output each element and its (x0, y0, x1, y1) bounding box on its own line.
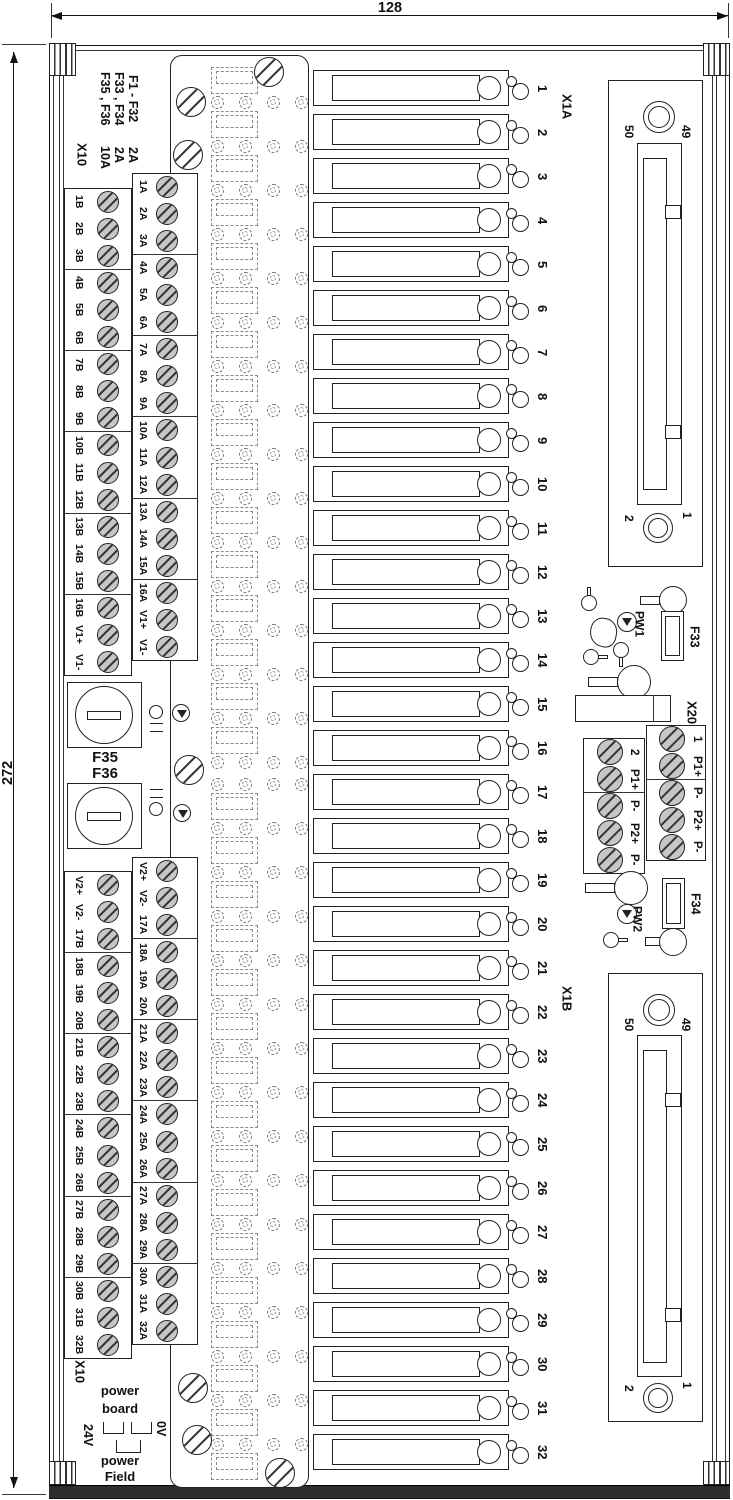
left-rail-line (59, 74, 60, 1461)
module-footprint-inner (216, 335, 253, 348)
terminal-label-5a: 5A (134, 282, 152, 308)
component-pad (149, 705, 163, 719)
test-point (295, 1262, 308, 1275)
mounting-screw (174, 755, 204, 785)
test-point (267, 492, 280, 505)
right-rail-line (716, 76, 717, 1461)
fuse-label-window (332, 471, 480, 497)
terminal-label-7a: 7A (134, 336, 152, 362)
test-point (239, 1350, 252, 1363)
fuse-label-window (332, 383, 480, 409)
screw-slot-line (176, 87, 201, 112)
fuse-number: 18 (534, 823, 551, 850)
x20-terminal-screw (597, 847, 623, 873)
module-footprint-inner (216, 291, 253, 304)
fuse-number: 16 (534, 735, 551, 762)
terminal-screw (97, 191, 119, 213)
test-point (239, 536, 252, 549)
test-point (295, 910, 308, 923)
screw-slot-line (97, 462, 115, 480)
x20-terminal-screw (659, 807, 685, 833)
dimension-arrow-left (51, 12, 62, 20)
fuse-label-window (332, 867, 480, 893)
board-bottom-edge (49, 1498, 730, 1499)
test-jack-top (506, 76, 517, 87)
screw-slot-line (156, 528, 174, 546)
terminal-screw (156, 1239, 178, 1261)
x20-terminal-label: 1 (689, 726, 705, 753)
fuse-f33-label: F33 (687, 615, 702, 659)
mounting-screw (182, 1425, 212, 1455)
x20-connector-body (575, 695, 671, 722)
test-point (295, 448, 308, 461)
test-point (211, 712, 224, 725)
test-point (295, 866, 308, 879)
led-indicator-icon (172, 704, 190, 722)
fuse-f34-inner (666, 883, 681, 924)
module-footprint-inner (216, 1149, 253, 1162)
terminal-label-16a: 16A (134, 580, 152, 606)
fuse-label-window (332, 603, 480, 629)
fuse-label-window (332, 251, 480, 277)
test-jack-top (506, 824, 517, 835)
module-footprint-inner (216, 379, 253, 392)
test-point (295, 580, 308, 593)
terminal-label-18a: 18A (134, 939, 152, 965)
fuse-indicator (477, 824, 501, 848)
fuse-label-window (332, 1395, 480, 1421)
terminal-screw (97, 462, 119, 484)
terminal-label-3a: 3A (134, 228, 152, 254)
terminal-label-21a: 21A (134, 1020, 152, 1046)
capacitor-lead (598, 655, 608, 659)
terminal-label-v2plus: V2+ (70, 872, 88, 898)
test-point (267, 910, 280, 923)
test-jack-top (506, 956, 517, 967)
dimension-arrow-down (10, 1477, 18, 1488)
pw1-label: PW1 (632, 603, 647, 645)
fuse-indicator (477, 1220, 501, 1244)
test-point (211, 492, 224, 505)
test-point (239, 1174, 252, 1187)
polarity-mark (150, 723, 163, 732)
fuse-number: 12 (534, 559, 551, 586)
test-point (295, 1130, 308, 1143)
test-point (211, 536, 224, 549)
terminal-screw (156, 860, 178, 882)
test-jack-top (506, 296, 517, 307)
capacitor-lead (587, 587, 591, 596)
terminal-screw (97, 901, 119, 923)
fuse-number: 32 (534, 1439, 551, 1466)
test-point (295, 1438, 308, 1451)
x1b-guide-hole-bottom-inner (648, 1388, 668, 1408)
screw-slot-line (174, 755, 199, 780)
test-point (267, 712, 280, 725)
terminal-screw (97, 1145, 119, 1167)
fuse-label-window (332, 1439, 480, 1465)
test-point (239, 272, 252, 285)
terminal-label-27a: 27A (134, 1183, 152, 1209)
test-jack-top (506, 1132, 517, 1143)
screw-slot-line (156, 1239, 174, 1257)
corner-cap-top-right (703, 43, 730, 76)
fuse-number: 25 (534, 1131, 551, 1158)
screw-slot-line (156, 1212, 174, 1230)
terminal-label-31a: 31A (134, 1291, 152, 1317)
test-point (267, 1174, 280, 1187)
terminal-label-15b: 15B (70, 568, 88, 594)
test-point (267, 866, 280, 879)
screw-slot-line (265, 1458, 290, 1483)
fuse-label-window (332, 207, 480, 233)
test-jack-top (506, 780, 517, 791)
terminal-screw (97, 955, 119, 977)
capacitor-icon (613, 642, 629, 658)
x20-terminal-screw (597, 739, 623, 765)
test-point (295, 668, 308, 681)
screw-slot-line (156, 501, 174, 519)
terminal-label-20b: 20B (70, 1007, 88, 1033)
test-jack-top (506, 1220, 517, 1231)
fuse-indicator (477, 208, 501, 232)
polarity-mark (150, 789, 163, 798)
capacitor-lead (588, 677, 618, 687)
screw-slot-line (182, 1425, 207, 1450)
test-point (211, 910, 224, 923)
fuse-indicator (477, 1000, 501, 1024)
fuse-label-window (332, 779, 480, 805)
test-point (211, 624, 224, 637)
x1a-pin2-label: 2 (622, 508, 636, 528)
terminal-screw (156, 1320, 178, 1342)
fuse-label-window (332, 1175, 480, 1201)
test-point (267, 228, 280, 241)
x20-terminal-screw (659, 753, 685, 779)
terminal-label-6a: 6A (134, 309, 152, 335)
board-right-edge-inner (725, 50, 726, 1494)
fuse-label-window (332, 163, 480, 189)
capacitor-lead (618, 938, 628, 942)
terminal-label-6b: 6B (70, 324, 88, 350)
terminal-label-v2minus: V2- (70, 899, 88, 925)
fuse-label-window (332, 295, 480, 321)
module-footprint-inner (216, 973, 253, 986)
mounting-screw (254, 57, 284, 87)
test-point (211, 272, 224, 285)
terminal-screw (156, 230, 178, 252)
test-point (295, 1218, 308, 1231)
dimension-arrow-right (717, 12, 728, 20)
power-board-label-line2: board (90, 1401, 150, 1416)
test-point (211, 866, 224, 879)
fuse-f34-label: F34 (688, 882, 703, 926)
terminal-screw (97, 874, 119, 896)
terminal-label-5b: 5B (70, 297, 88, 323)
screw-slot-line (97, 543, 115, 561)
module-footprint-inner (216, 247, 253, 260)
fuse-number: 20 (534, 911, 551, 938)
terminal-label-v1plus: V1+ (70, 622, 88, 648)
terminal-label-8b: 8B (70, 378, 88, 404)
fuse-number: 26 (534, 1175, 551, 1202)
terminal-screw (156, 582, 178, 604)
test-point (267, 184, 280, 197)
test-point (295, 1394, 308, 1407)
mounting-screw (173, 140, 203, 170)
terminal-screw (97, 1199, 119, 1221)
screw-slot-line (97, 1145, 115, 1163)
terminal-screw (97, 570, 119, 592)
component-pad (149, 802, 163, 816)
test-point (211, 998, 224, 1011)
mounting-screw (265, 1458, 295, 1488)
test-point (295, 1306, 308, 1319)
fuse-label-window (332, 1351, 480, 1377)
terminal-label-18b: 18B (70, 953, 88, 979)
fuse-indicator (477, 1440, 501, 1464)
test-point (211, 1042, 224, 1055)
test-point (295, 184, 308, 197)
test-point (239, 140, 252, 153)
terminal-label-32a: 32A (134, 1318, 152, 1344)
screw-slot-line (254, 57, 279, 82)
pw2-label: PW2 (630, 898, 645, 940)
test-jack-top (506, 1176, 517, 1187)
test-point (295, 228, 308, 241)
fuse-number: 7 (534, 339, 551, 366)
fuse-number: 3 (534, 163, 551, 190)
fuse-indicator (477, 956, 501, 980)
terminal-label-26b: 26B (70, 1170, 88, 1196)
terminal-screw (156, 609, 178, 631)
test-point (239, 1130, 252, 1143)
test-jack-top (506, 340, 517, 351)
x1a-pin49-label: 49 (679, 120, 693, 144)
corner-cap-top-left (49, 43, 76, 76)
module-footprint-inner (216, 1325, 253, 1338)
test-point (211, 360, 224, 373)
test-point (211, 1350, 224, 1363)
fuse-indicator (477, 692, 501, 716)
fuse-number: 5 (534, 251, 551, 278)
module-footprint-inner (216, 1193, 253, 1206)
terminal-screw (156, 176, 178, 198)
terminal-screw (156, 1158, 178, 1180)
terminal-screw (156, 1185, 178, 1207)
test-point (239, 96, 252, 109)
fuse-number: 31 (534, 1395, 551, 1422)
fuse-label-window (332, 823, 480, 849)
test-point (239, 1438, 252, 1451)
corner-cap-bottom-left (49, 1461, 76, 1485)
terminal-label-3b: 3B (70, 243, 88, 269)
power-field-label-line1: power (90, 1453, 150, 1468)
terminal-label-13a: 13A (134, 499, 152, 525)
terminal-label-14b: 14B (70, 541, 88, 567)
fuse-label-window (332, 1263, 480, 1289)
test-point (267, 668, 280, 681)
test-point (295, 954, 308, 967)
test-jack-top (506, 1000, 517, 1011)
terminal-screw (97, 1334, 119, 1356)
x20-terminal-label: P1+ (689, 753, 705, 780)
terminal-screw (156, 1266, 178, 1288)
x20-terminal-screw (597, 793, 623, 819)
test-jack-top (506, 868, 517, 879)
terminal-screw (156, 636, 178, 658)
dimension-height-line (13, 52, 14, 1488)
test-point (211, 448, 224, 461)
terminal-label-29a: 29A (134, 1237, 152, 1263)
test-point (239, 360, 252, 373)
test-jack-top (506, 120, 517, 131)
fuse-indicator (477, 1132, 501, 1156)
x20-terminal-screw (659, 726, 685, 752)
test-point (239, 184, 252, 197)
screw-slot-line (173, 140, 198, 165)
fuse-number: 28 (534, 1263, 551, 1290)
fuse-f36-label: F36 (70, 765, 140, 782)
terminal-label-29b: 29B (70, 1251, 88, 1277)
test-jack-top (506, 1308, 517, 1319)
board-top-edge-inner (53, 50, 725, 51)
fuse-indicator (477, 428, 501, 452)
test-point (267, 404, 280, 417)
terminal-label-15a: 15A (134, 553, 152, 579)
test-point (267, 316, 280, 329)
terminal-screw (156, 555, 178, 577)
connector-x10-bottom-label: X10 (72, 1352, 88, 1392)
fuse-label-window (332, 735, 480, 761)
terminal-screw (97, 928, 119, 950)
test-point (295, 492, 308, 505)
test-jack-top (506, 472, 517, 483)
module-footprint-inner (216, 159, 253, 172)
test-jack-top (506, 1044, 517, 1055)
fuse-label-window (332, 339, 480, 365)
terminal-screw (97, 1226, 119, 1248)
test-point (239, 954, 252, 967)
test-jack-top (506, 1352, 517, 1363)
terminal-screw (156, 1131, 178, 1153)
fuse-label-window (332, 691, 480, 717)
screw-slot-line (156, 1185, 174, 1203)
x20-terminal-label: P- (626, 847, 642, 874)
x1b-socket-key (643, 1050, 667, 1363)
terminal-screw (156, 257, 178, 279)
fuse-indicator (477, 472, 501, 496)
test-point (267, 1086, 280, 1099)
fuse-indicator (477, 868, 501, 892)
fuse-label-window (332, 427, 480, 453)
test-point (267, 140, 280, 153)
dimension-width-line (51, 15, 728, 16)
module-footprint-inner (216, 1237, 253, 1250)
terminal-label-v1minus: V1- (70, 649, 88, 675)
module-footprint-inner (216, 731, 253, 744)
terminal-screw (97, 1280, 119, 1302)
test-point (295, 1174, 308, 1187)
module-footprint-inner (216, 555, 253, 568)
fuse-indicator (477, 1044, 501, 1068)
terminal-label-23b: 23B (70, 1088, 88, 1114)
terminal-label-9a: 9A (134, 390, 152, 416)
test-point (211, 184, 224, 197)
terminal-screw (97, 489, 119, 511)
screw-slot-line (156, 555, 174, 573)
test-point (211, 140, 224, 153)
termination-board-drawing: 128 272 F1 - F32 F33 , F34 F35 , F36 2A … (0, 0, 733, 1500)
terminal-screw (97, 516, 119, 538)
legend-rating-row2: 2A (111, 140, 127, 170)
mounting-screw (176, 87, 206, 117)
test-point (239, 1086, 252, 1099)
test-point (211, 668, 224, 681)
terminal-label-24a: 24A (134, 1101, 152, 1127)
dimension-arrow-up (10, 52, 18, 63)
terminal-screw (156, 941, 178, 963)
module-footprint-inner (216, 929, 253, 942)
fuse-label-window (332, 1219, 480, 1245)
test-point (267, 96, 280, 109)
module-footprint-inner (216, 1105, 253, 1118)
fuse-number: 27 (534, 1219, 551, 1246)
fuse-indicator (477, 120, 501, 144)
test-jack-top (506, 648, 517, 659)
module-footprint-inner (216, 1061, 253, 1074)
test-point (239, 492, 252, 505)
fuse-f33-inner (665, 616, 680, 656)
x1b-pin50-label: 50 (622, 1013, 636, 1037)
power-0v-label: 0V (153, 1415, 169, 1443)
test-point (267, 822, 280, 835)
test-point (267, 360, 280, 373)
x1a-label: X1A (559, 84, 575, 130)
test-point (295, 404, 308, 417)
board-right-edge (729, 45, 730, 1498)
fuse-label-window (332, 1043, 480, 1069)
terminal-label-2a: 2A (134, 201, 152, 227)
module-footprint-inner (216, 1281, 253, 1294)
test-point (295, 272, 308, 285)
terminal-label-20a: 20A (134, 993, 152, 1019)
module-footprint-inner (216, 687, 253, 700)
test-point (211, 228, 224, 241)
terminal-screw (97, 272, 119, 294)
fuse-indicator (477, 516, 501, 540)
board-top-edge (49, 45, 730, 46)
test-point (267, 756, 280, 769)
fuse-indicator (477, 1264, 501, 1288)
test-jack-top (506, 912, 517, 923)
x20-terminal-screw (597, 766, 623, 792)
screw-slot-line (97, 1253, 115, 1271)
terminal-label-30a: 30A (134, 1264, 152, 1290)
terminal-label-25a: 25A (134, 1129, 152, 1155)
module-footprint-inner (216, 643, 253, 656)
test-point (295, 316, 308, 329)
module-footprint-inner (216, 599, 253, 612)
test-point (239, 228, 252, 241)
x20-terminal-screw (597, 820, 623, 846)
x20-terminal-label: P2+ (689, 807, 705, 834)
screw-slot-line (156, 474, 174, 492)
x1b-guide-hole-top-inner (648, 999, 670, 1021)
test-point (267, 1262, 280, 1275)
terminal-screw (156, 474, 178, 496)
fuse-number: 1 (534, 75, 551, 102)
